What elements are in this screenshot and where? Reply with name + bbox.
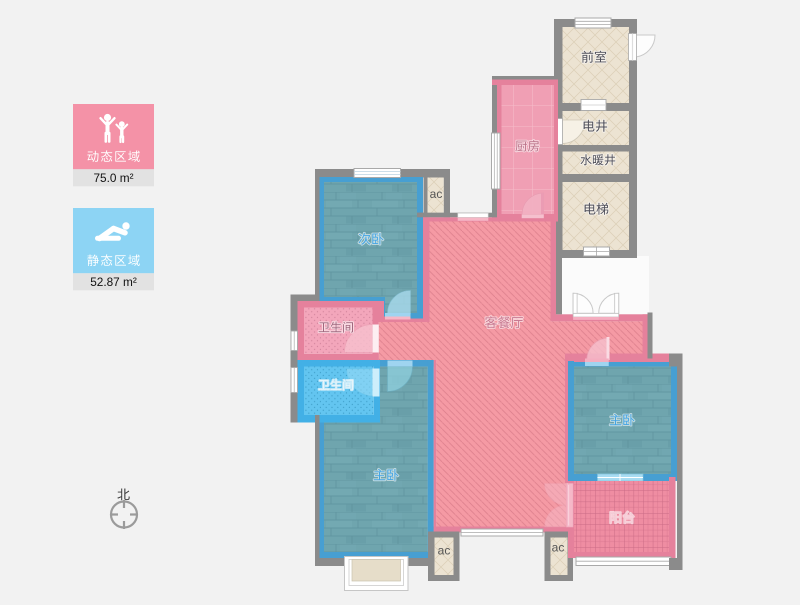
svg-text:ac: ac bbox=[430, 187, 443, 201]
svg-text:75.0 m²: 75.0 m² bbox=[94, 171, 134, 185]
svg-text:ac: ac bbox=[552, 541, 565, 555]
svg-text:ac: ac bbox=[438, 544, 451, 558]
svg-text:52.87 m²: 52.87 m² bbox=[90, 275, 137, 289]
